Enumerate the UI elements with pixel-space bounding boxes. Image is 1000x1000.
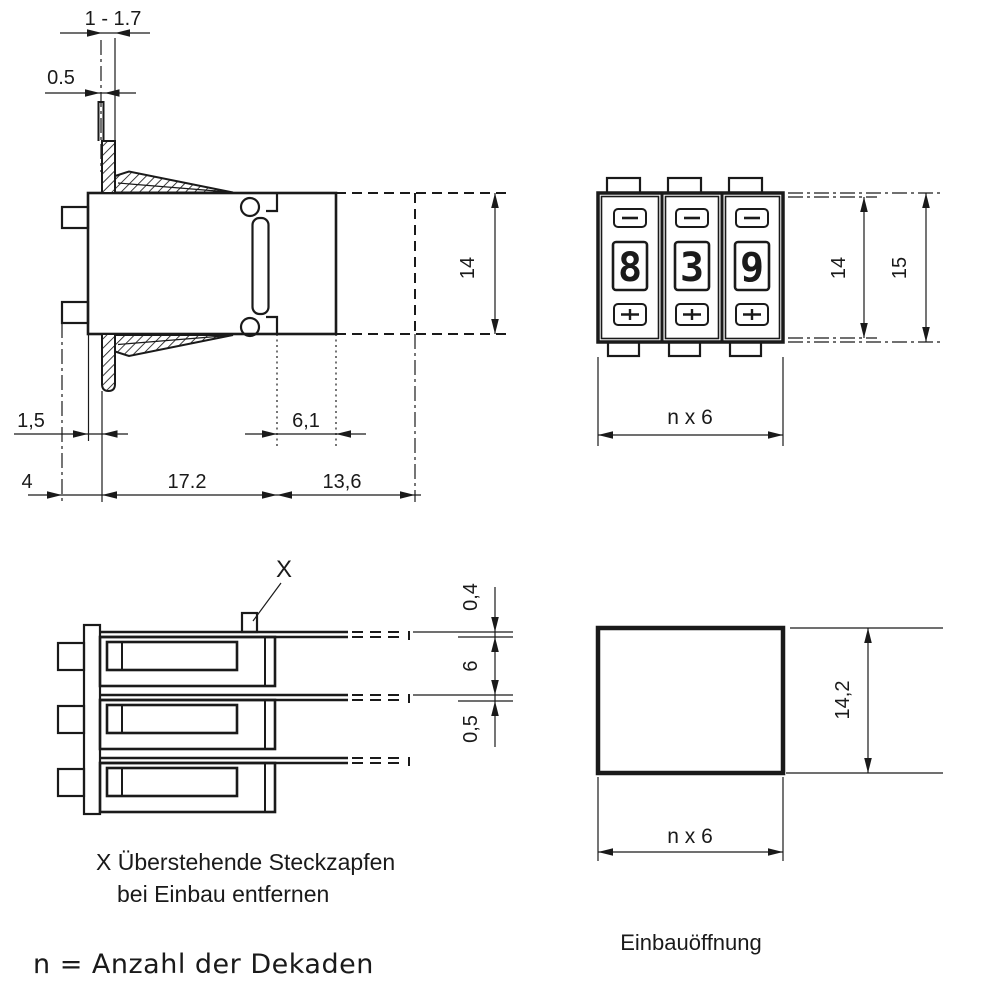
dim-label-rear-depth: 13,6 (323, 471, 362, 493)
dim-label-decade-pitch: 6 (460, 660, 482, 671)
dim-label-front-offset: 1,5 (17, 410, 45, 432)
digit-display-3: 9 (740, 245, 764, 291)
x-note-line1: X Überstehende Steckzapfen (96, 849, 395, 875)
dim-label-side-height: 14 (457, 257, 479, 279)
n-definition-note: n = Anzahl der Dekaden (33, 949, 374, 980)
technical-drawing: 1 - 1.7 0.5 14 1,5 6,1 4 17.2 13,6 8 (0, 0, 1000, 1000)
dim-label-opening-width: n x 6 (667, 825, 713, 848)
dim-label-outer-height: 15 (889, 257, 911, 279)
digit-display-2: 3 (680, 245, 704, 291)
opening-caption: Einbauöffnung (620, 930, 762, 955)
x-marker: X (276, 556, 292, 583)
dim-label-slot-depth: 6,1 (292, 410, 320, 432)
dim-label-body-depth: 17.2 (168, 471, 207, 493)
dim-label-plate-thickness: 0,5 (460, 715, 482, 743)
dim-label-pin-thickness: 0,4 (460, 583, 482, 611)
drawing-sheet: 1 - 1.7 0.5 14 1,5 6,1 4 17.2 13,6 8 (0, 0, 1000, 1000)
dim-label-inner-height: 14 (828, 257, 850, 279)
dim-label-opening-height: 14,2 (832, 681, 854, 720)
dim-label-pin-length: 4 (21, 471, 32, 493)
dim-label-panel-thickness: 1 - 1.7 (85, 8, 142, 30)
dim-label-pin-protrusion: 0.5 (47, 67, 75, 89)
x-note-line2: bei Einbau entfernen (117, 881, 329, 907)
digit-display-1: 8 (618, 245, 642, 291)
dim-label-front-width: n x 6 (667, 406, 713, 429)
